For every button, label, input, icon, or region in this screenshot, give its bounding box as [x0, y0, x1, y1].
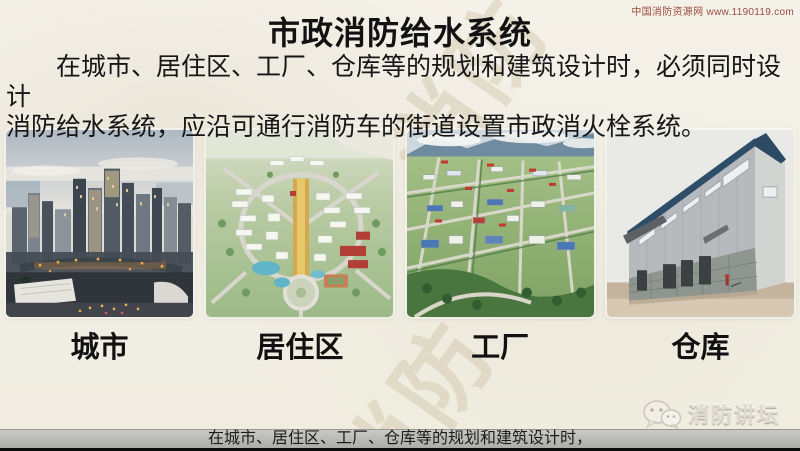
- body-line-2: 消防给水系统，应沿可通行消防车的街道设置市政消火栓系统。: [6, 112, 794, 142]
- wechat-logo: 消防讲坛: [642, 399, 780, 429]
- wechat-bubbles-icon: [642, 399, 682, 429]
- photo-labels-row: 城市 居住区 工厂 仓库: [6, 324, 794, 366]
- photo-factory: [407, 130, 594, 317]
- wechat-account-name: 消防讲坛: [688, 399, 780, 429]
- photo-label-factory: 工厂: [407, 324, 594, 366]
- photo-label-city: 城市: [6, 324, 193, 366]
- industrial-park-rendering: [407, 130, 594, 317]
- body-paragraph: 在城市、居住区、工厂、仓库等的规划和建筑设计时，必须同时设计 消防给水系统，应沿…: [6, 52, 794, 142]
- caption-text: 在城市、居住区、工厂、仓库等的规划和建筑设计时，: [208, 430, 592, 447]
- photo-warehouse: [607, 130, 794, 317]
- city-skyline-photo: [6, 130, 193, 317]
- photo-label-residential: 居住区: [206, 324, 393, 366]
- photo-row: [6, 130, 794, 317]
- photo-city: [6, 130, 193, 317]
- body-line-1: 在城市、居住区、工厂、仓库等的规划和建筑设计时，必须同时设计: [6, 52, 794, 112]
- photo-residential: [206, 130, 393, 317]
- warehouse-building-photo: [607, 130, 794, 317]
- residential-district-rendering: [206, 130, 393, 317]
- caption-bar: 在城市、居住区、工厂、仓库等的规划和建筑设计时，: [0, 429, 800, 448]
- presentation-slide: 消防 消防 中国消防资源网 www.1190119.com 市政消防给水系统 在…: [0, 0, 800, 451]
- photo-label-warehouse: 仓库: [607, 324, 794, 366]
- slide-title: 市政消防给水系统: [0, 8, 800, 54]
